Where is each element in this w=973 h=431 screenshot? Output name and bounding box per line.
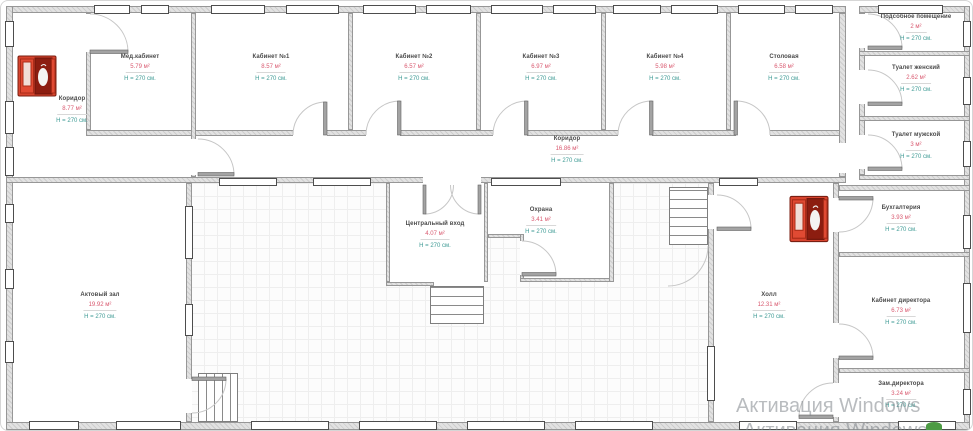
window[interactable]	[251, 421, 329, 430]
room-area: 3.41 м²	[526, 217, 555, 226]
wall[interactable]	[476, 13, 481, 130]
window[interactable]	[963, 389, 971, 415]
room-area: 3.93 м²	[886, 215, 915, 224]
room-label-corridor-main: Коридор 16.86 м² H = 270 см.	[551, 136, 584, 164]
window[interactable]	[671, 5, 718, 14]
room-area: 5.98 м²	[650, 64, 679, 73]
window[interactable]	[878, 5, 943, 14]
room-height: H = 270 см.	[80, 314, 119, 320]
fire-extinguisher-cabinet-icon[interactable]	[789, 193, 829, 245]
window[interactable]	[363, 5, 416, 14]
room-name: Зам.директора	[878, 381, 924, 387]
windows-activation-watermark: Активация Windows	[736, 395, 920, 418]
window[interactable]	[116, 421, 181, 430]
room-area: 6.57 м²	[399, 64, 428, 73]
wall[interactable]	[859, 175, 970, 180]
door-opening	[833, 323, 839, 358]
stairs[interactable]	[669, 187, 708, 245]
room-name: Туалет мужской	[892, 132, 941, 138]
room-area: 4.07 м²	[420, 231, 449, 240]
window[interactable]	[491, 5, 543, 14]
room-height: H = 270 см.	[892, 87, 940, 93]
wall[interactable]	[609, 183, 614, 282]
room-area: 2 м²	[905, 24, 926, 33]
window[interactable]	[575, 421, 653, 430]
door-opening	[859, 135, 865, 169]
window[interactable]	[359, 421, 437, 430]
window[interactable]	[963, 77, 971, 105]
window[interactable]	[286, 5, 339, 14]
room-name: Кабинет №4	[647, 54, 684, 60]
door-leaf	[90, 50, 128, 54]
room-label-office-2: Кабинет №2 6.57 м² H = 270 см.	[396, 54, 433, 82]
room-height: H = 270 см.	[523, 76, 560, 82]
door-arc	[839, 324, 873, 358]
window[interactable]	[141, 5, 169, 14]
wall[interactable]	[386, 282, 434, 286]
room-label-office-1: Кабинет №1 8.57 м² H = 270 см.	[253, 54, 290, 82]
wall[interactable]	[348, 13, 353, 130]
room-name: Подсобное помещение	[881, 14, 952, 20]
door-opening	[859, 14, 865, 48]
window[interactable]	[963, 283, 971, 333]
window[interactable]	[719, 178, 758, 186]
room-height: H = 270 см.	[647, 76, 684, 82]
window[interactable]	[963, 215, 971, 249]
window[interactable]	[185, 206, 193, 259]
wall[interactable]	[859, 116, 970, 121]
plant-icon[interactable]	[926, 422, 942, 430]
fire-extinguisher-cabinet-icon[interactable]	[17, 53, 57, 99]
room-label-corridor-left: Коридор 8.77 м² H = 270 см.	[56, 96, 88, 124]
door-leaf	[868, 102, 902, 106]
floor-plan-canvas: Коридор 8.77 м² H = 270 см. Мед.кабинет …	[0, 0, 973, 431]
wall[interactable]	[726, 13, 731, 130]
window[interactable]	[94, 5, 130, 14]
room-label-office-4: Кабинет №4 5.98 м² H = 270 см.	[647, 54, 684, 82]
wall[interactable]	[839, 368, 970, 373]
wall[interactable]	[859, 51, 970, 56]
room-name: Охрана	[525, 207, 557, 213]
window[interactable]	[707, 346, 715, 401]
window[interactable]	[5, 341, 14, 363]
stairs[interactable]	[198, 373, 238, 422]
door-opening	[618, 130, 652, 136]
door-opening	[191, 139, 196, 175]
wall[interactable]	[839, 185, 970, 191]
door-leaf	[839, 197, 873, 201]
window[interactable]	[5, 101, 14, 134]
door-opening	[86, 14, 91, 52]
door-opening	[423, 177, 481, 183]
window[interactable]	[795, 5, 833, 14]
window[interactable]	[313, 178, 371, 186]
room-label-security: Охрана 3.41 м² H = 270 см.	[525, 207, 557, 235]
window[interactable]	[5, 21, 14, 47]
door-arc	[90, 14, 128, 52]
room-area: 16.86 м²	[551, 146, 584, 155]
room-area: 3 м²	[905, 142, 926, 151]
room-name: Кабинет №2	[396, 54, 433, 60]
room-label-med-office: Мед.кабинет 5.79 м² H = 270 см.	[121, 54, 159, 82]
window[interactable]	[963, 21, 971, 47]
room-label-wc-women: Туалет женский 2.62 м² H = 270 см.	[892, 65, 940, 93]
window[interactable]	[5, 269, 14, 289]
room-name: Мед.кабинет	[121, 54, 159, 60]
door-opening	[520, 241, 524, 275]
room-area: 2.62 м²	[901, 75, 930, 84]
window[interactable]	[963, 141, 971, 167]
door-arc	[198, 139, 234, 175]
window[interactable]	[211, 5, 265, 14]
room-name: Кабинет №3	[523, 54, 560, 60]
window[interactable]	[219, 178, 277, 186]
room-area: 5.79 м²	[125, 64, 154, 73]
door-opening	[839, 143, 846, 173]
room-area: 6.58 м²	[769, 64, 798, 73]
window[interactable]	[185, 304, 193, 336]
room-label-accounting: Бухгалтерия 3.93 м² H = 270 см.	[882, 205, 921, 233]
room-name: Центральный вход	[406, 221, 465, 227]
room-height: H = 270 см.	[406, 243, 465, 249]
door-opening	[186, 379, 192, 413]
window[interactable]	[491, 178, 561, 186]
room-height: H = 270 см.	[396, 76, 433, 82]
room-name: Бухгалтерия	[882, 205, 921, 211]
window[interactable]	[613, 5, 661, 14]
door-leaf	[839, 356, 873, 360]
room-height: H = 270 см.	[121, 76, 159, 82]
room-height: H = 270 см.	[551, 158, 584, 164]
door-opening	[833, 198, 839, 232]
room-name: Столовая	[768, 54, 800, 60]
room-label-wc-men: Туалет мужской 3 м² H = 270 см.	[892, 132, 941, 160]
room-height: H = 270 см.	[882, 227, 921, 233]
room-area: 6.97 м²	[526, 64, 555, 73]
door-opening	[366, 130, 400, 136]
window[interactable]	[467, 421, 545, 430]
door-opening	[859, 70, 865, 104]
door-leaf	[717, 227, 751, 231]
door-leaf	[868, 167, 902, 171]
room-name: Коридор	[56, 96, 88, 102]
window[interactable]	[738, 5, 785, 14]
room-label-dining: Столовая 6.58 м² H = 270 см.	[768, 54, 800, 82]
room-area: 6.73 м²	[886, 308, 915, 317]
door-arc	[717, 195, 751, 229]
room-label-hall: Холл 12.31 м² H = 270 см.	[753, 292, 786, 320]
wall[interactable]	[520, 278, 613, 282]
room-height: H = 270 см.	[525, 229, 557, 235]
room-height: H = 270 см.	[253, 76, 290, 82]
room-label-central-entrance: Центральный вход 4.07 м² H = 270 см.	[406, 221, 465, 249]
door-opening	[293, 130, 327, 136]
room-height: H = 270 см.	[881, 36, 952, 42]
wall[interactable]	[601, 13, 606, 130]
room-label-office-3: Кабинет №3 6.97 м² H = 270 см.	[523, 54, 560, 82]
room-name: Кабинет директора	[872, 298, 931, 304]
room-height: H = 270 см.	[768, 76, 800, 82]
window[interactable]	[5, 204, 14, 223]
room-height: H = 270 см.	[753, 314, 786, 320]
room-name: Туалет женский	[892, 65, 940, 71]
window[interactable]	[29, 421, 79, 430]
wall[interactable]	[386, 183, 390, 282]
window[interactable]	[426, 5, 471, 14]
door-leaf	[868, 46, 902, 50]
door-leaf	[198, 173, 234, 177]
door-opening	[736, 130, 770, 136]
room-area: 19.92 м²	[84, 302, 117, 311]
room-name: Холл	[753, 292, 786, 298]
room-label-utility: Подсобное помещение 2 м² H = 270 см.	[881, 14, 952, 42]
room-label-assembly-hall: Актовый зал 19.92 м² H = 270 см.	[80, 292, 119, 320]
wall[interactable]	[86, 130, 846, 136]
window[interactable]	[5, 147, 14, 176]
room-area: 12.31 м²	[753, 302, 786, 311]
entrance-steps[interactable]	[430, 286, 484, 324]
room-area: 8.77 м²	[57, 106, 86, 115]
room-area: 8.57 м²	[256, 64, 285, 73]
door-opening	[493, 130, 527, 136]
room-name: Актовый зал	[80, 292, 119, 298]
windows-activation-watermark-line2: Активация Windows	[743, 420, 927, 431]
room-label-director-office: Кабинет директора 6.73 м² H = 270 см.	[872, 298, 931, 326]
wall[interactable]	[488, 234, 524, 238]
room-height: H = 270 см.	[892, 154, 941, 160]
window[interactable]	[553, 5, 596, 14]
room-height: H = 270 см.	[56, 118, 88, 124]
room-name: Коридор	[551, 136, 584, 142]
door-arc	[839, 198, 873, 232]
room-height: H = 270 см.	[872, 320, 931, 326]
wall[interactable]	[484, 183, 488, 282]
wall[interactable]	[839, 252, 970, 257]
door-opening	[708, 195, 714, 229]
room-name: Кабинет №1	[253, 54, 290, 60]
